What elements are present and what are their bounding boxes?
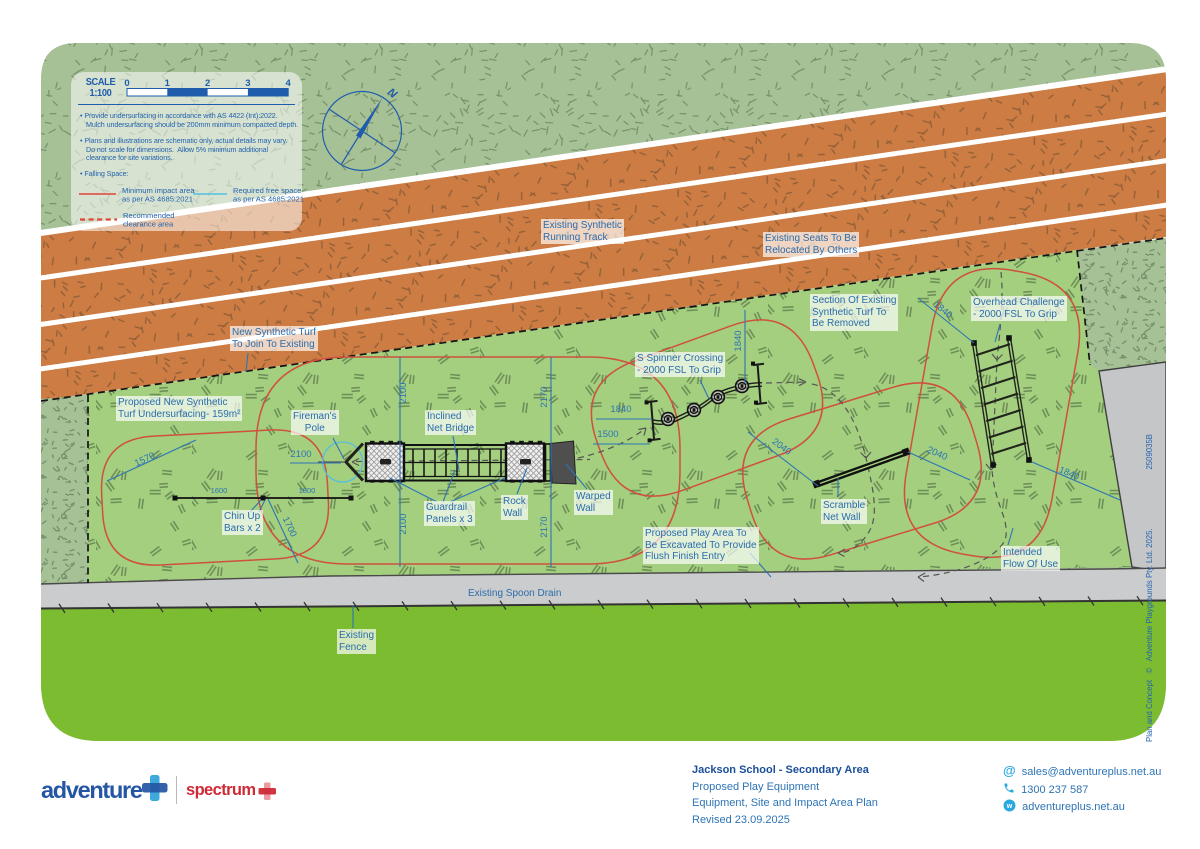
- svg-text:2170: 2170: [539, 386, 550, 407]
- svg-text:as per AS 4685:2021: as per AS 4685:2021: [233, 195, 304, 204]
- svg-text:1800: 1800: [299, 486, 316, 495]
- svg-text:3: 3: [245, 78, 250, 89]
- svg-text:0: 0: [124, 78, 129, 89]
- svg-text:1500: 1500: [597, 429, 618, 440]
- svg-text:1840: 1840: [733, 330, 744, 351]
- svg-text:1600: 1600: [211, 486, 228, 495]
- svg-text:w: w: [1006, 803, 1013, 810]
- svg-text:clearance area: clearance area: [123, 220, 174, 229]
- svg-text:1840: 1840: [610, 404, 631, 415]
- svg-text:as per AS 4685:2021: as per AS 4685:2021: [122, 195, 193, 204]
- svg-text:2100: 2100: [398, 382, 409, 403]
- svg-text:4: 4: [286, 78, 292, 89]
- svg-text:2100: 2100: [290, 449, 311, 460]
- svg-text:1: 1: [165, 78, 171, 89]
- svg-text:2170: 2170: [539, 516, 550, 537]
- svg-text:2: 2: [205, 78, 210, 89]
- svg-text:2100: 2100: [398, 513, 409, 534]
